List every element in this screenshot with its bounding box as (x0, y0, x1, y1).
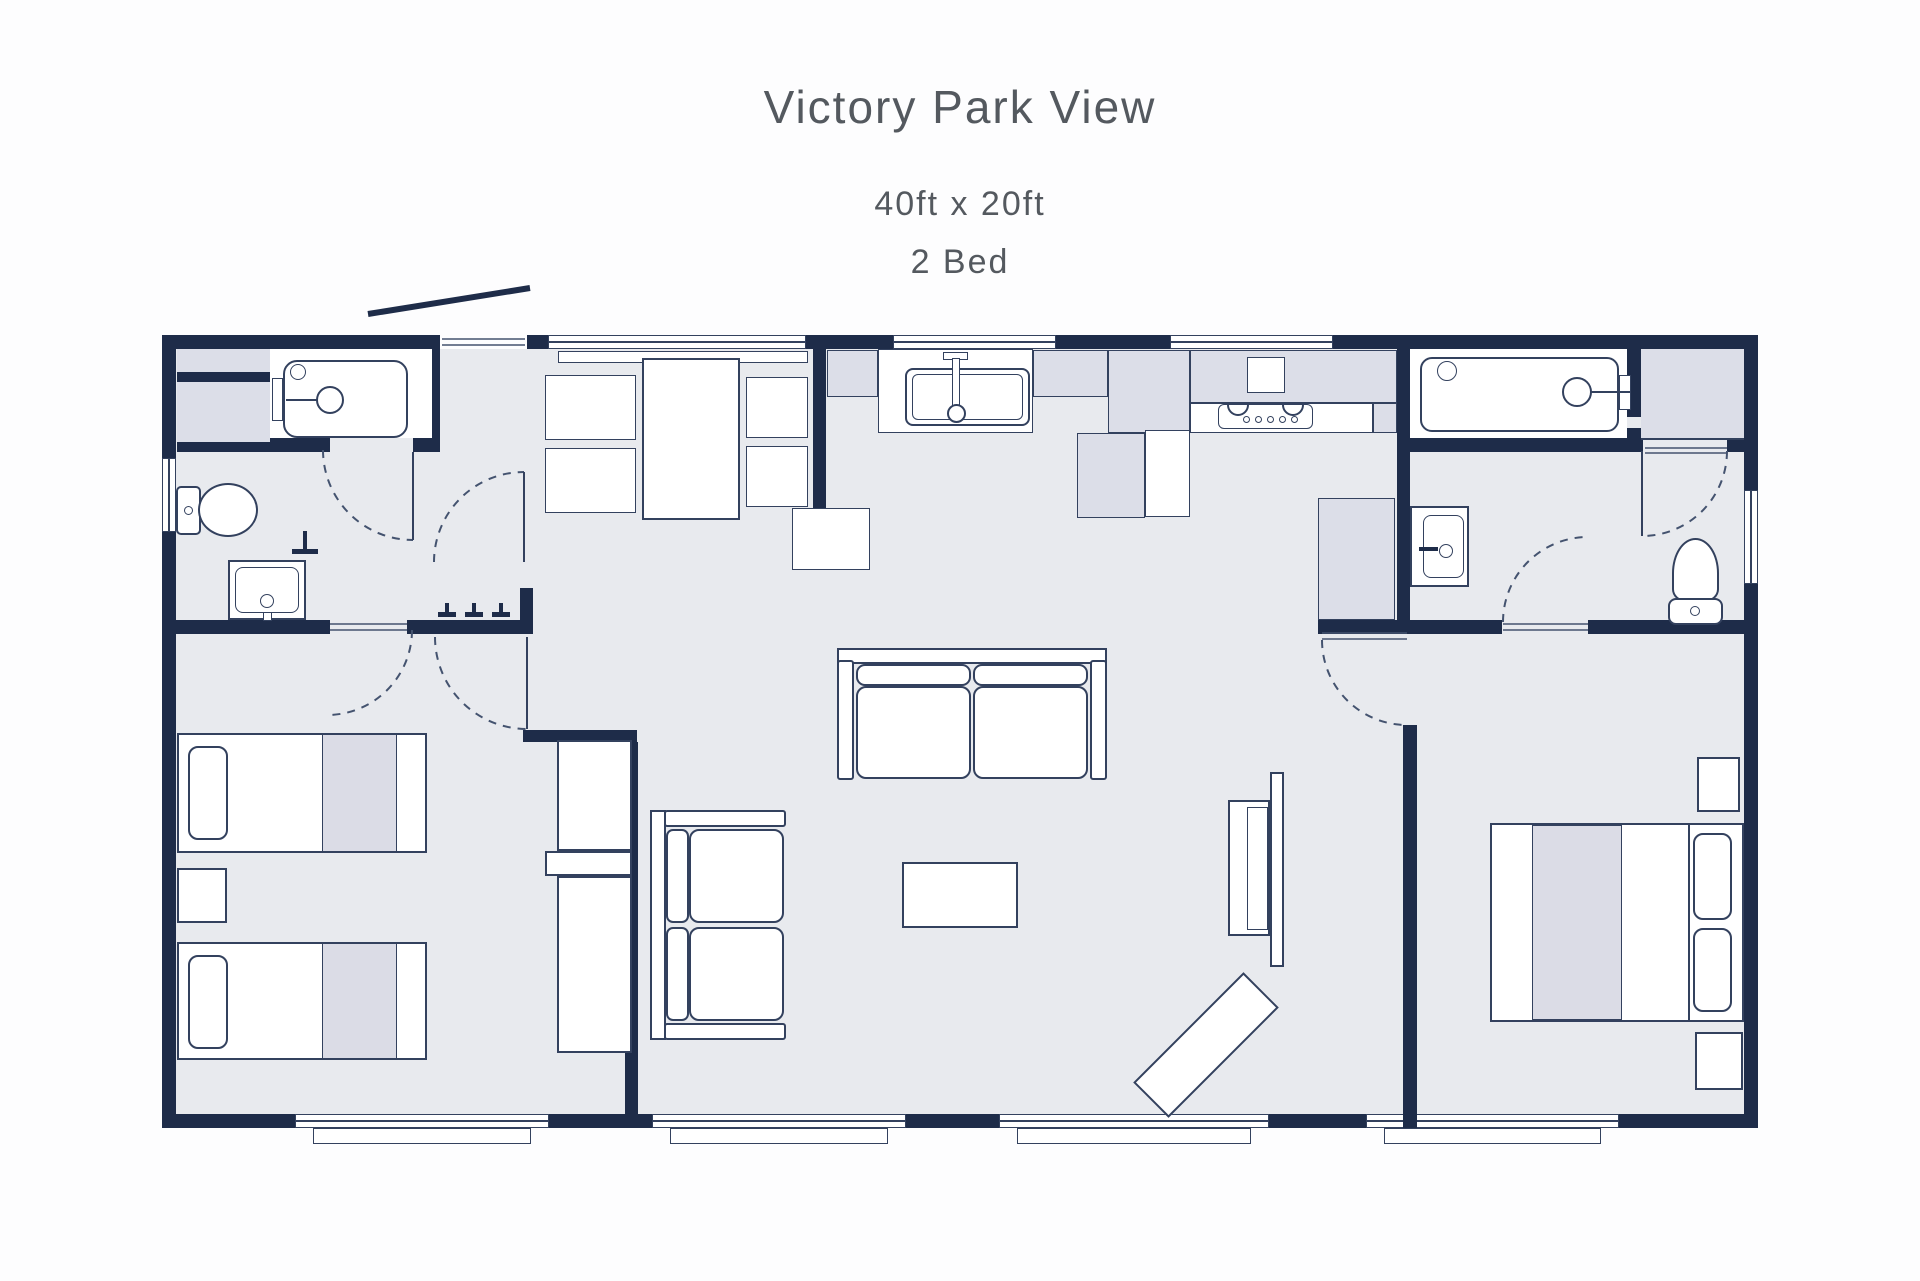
bed-pillow (188, 746, 228, 840)
shower-shelf-unit (177, 349, 270, 372)
plan-dimensions: 40ft x 20ft (0, 185, 1920, 224)
toilet-flush-button (184, 506, 193, 515)
towel-rail-icon (303, 531, 307, 551)
kitchen-cabinet (1033, 350, 1108, 397)
stove-burner (1291, 416, 1298, 423)
shower-enclosure (1641, 349, 1744, 440)
coffee-table (902, 862, 1018, 928)
wall-top (162, 335, 440, 349)
sofa-armrest (837, 660, 854, 780)
bed-pillow (188, 955, 228, 1049)
window-glass-line (1750, 490, 1752, 584)
plan-title: Victory Park View (0, 80, 1920, 134)
kitchen-sink-basin (912, 374, 1023, 420)
wall-bottom (162, 1114, 295, 1128)
wall-hall-stub (520, 588, 533, 634)
kitchen-unit (1145, 430, 1190, 517)
wardrobe (557, 876, 632, 1053)
wall-bathroom1-tub (413, 438, 440, 452)
wall-bedroom2-left (1403, 725, 1417, 1128)
loveseat-back (650, 810, 666, 1040)
wall-right (1744, 584, 1758, 1128)
nightstand (1695, 1032, 1743, 1090)
window-glass-line (893, 341, 1056, 343)
wall-bathroom2-tub (1410, 438, 1627, 452)
tv-screen (1270, 772, 1284, 967)
bathtub-ledge (1619, 375, 1631, 410)
wardrobe (557, 740, 632, 851)
loveseat-seat-cushion (689, 829, 784, 923)
bathtub-ledge (272, 378, 283, 421)
kitchen-appliance (1247, 357, 1285, 393)
entrance-door-leaf (368, 288, 530, 314)
loveseat-back-cushion (666, 829, 689, 923)
kitchen-cabinet (827, 350, 878, 397)
shelf-divider (177, 442, 274, 452)
kitchen-faucet (952, 358, 960, 406)
floorplan-page: Victory Park View 40ft x 20ft 2 Bed (0, 0, 1920, 1281)
sink-tap (1419, 547, 1438, 551)
sofa-back-cushion (856, 664, 971, 686)
kitchen-faucet-head (947, 404, 966, 423)
window-sill (1017, 1128, 1251, 1144)
plan-bedroom-count: 2 Bed (0, 243, 1920, 282)
nightstand (177, 868, 227, 923)
window-glass-line (999, 1120, 1269, 1122)
stove-burner (1267, 416, 1274, 423)
towel-rail-icon (292, 549, 318, 554)
wall-right (1744, 335, 1758, 490)
wall-top (1333, 335, 1744, 349)
wall-left (162, 349, 176, 458)
tv-stand-inner (1247, 807, 1268, 930)
coat-hook-icon (465, 612, 483, 617)
kitchen-cabinet (1108, 350, 1190, 433)
kitchen-cabinet-run (1190, 350, 1397, 403)
sofa-back-cushion (973, 664, 1088, 686)
kitchen-peninsula (792, 508, 870, 570)
stove-burner (1243, 416, 1250, 423)
sink-tap (263, 612, 272, 621)
bed-blanket (1532, 825, 1622, 1020)
wall-bathroom1-tub (270, 438, 330, 452)
stove-burner (1255, 416, 1262, 423)
bathtub-drain (290, 364, 306, 380)
loveseat-armrest (664, 1023, 786, 1040)
wall-kitchen-left (813, 335, 826, 512)
bed-pillow (1693, 833, 1732, 920)
wardrobe-shelf (545, 851, 632, 876)
loveseat-back-cushion (666, 927, 689, 1021)
sofa-armrest (1090, 660, 1107, 780)
toilet-bowl (198, 483, 258, 537)
wall-top (1056, 335, 1170, 349)
toilet-flush-button (1690, 606, 1700, 616)
window-glass-line (168, 458, 170, 532)
wall-kitchen-right (1397, 335, 1410, 622)
toilet-bowl (1672, 538, 1719, 602)
fridge (1318, 498, 1395, 620)
loveseat-armrest (664, 810, 786, 827)
wall-bottom (1269, 1114, 1366, 1128)
window-sill (313, 1128, 531, 1144)
wall-top (527, 335, 548, 349)
shower-shelf-unit (177, 382, 270, 442)
window-glass-line (548, 341, 806, 343)
dining-chair (746, 446, 808, 507)
sofa-back (837, 648, 1107, 664)
window-glass-line (295, 1120, 549, 1122)
nightstand (1697, 757, 1740, 812)
bathtub-drain (1437, 361, 1457, 381)
coat-hook-icon (438, 612, 456, 617)
window-glass-line (652, 1120, 906, 1122)
wall-bedroom2-top (1318, 620, 1502, 634)
wall-bottom (1619, 1114, 1758, 1128)
kitchen-unit (1077, 433, 1145, 518)
sofa-seat-cushion (973, 686, 1088, 779)
window-glass-line (1170, 341, 1333, 343)
dining-chair (746, 377, 808, 438)
bed-pillow (1693, 928, 1732, 1012)
bathtub-faucet (1562, 377, 1592, 407)
sink-drain (260, 594, 274, 608)
bathtub-faucet (316, 386, 344, 414)
wall-hall-hooks (407, 620, 523, 634)
wall-bottom (906, 1114, 999, 1128)
window-sill (670, 1128, 888, 1144)
shelf-divider (177, 372, 270, 382)
stove-burner (1279, 416, 1286, 423)
dining-table (642, 358, 740, 520)
sofa-seat-cushion (856, 686, 971, 779)
dining-chair (545, 448, 636, 513)
bed-headboard-line (1688, 824, 1690, 1021)
stove-hob (1218, 404, 1313, 429)
wall-bathroom1-bottom (162, 620, 330, 634)
wall-bathroom2-stub (1727, 438, 1744, 452)
dining-chair (545, 375, 636, 440)
coat-hook-icon (492, 612, 510, 617)
sink-drain (1439, 544, 1453, 558)
loveseat-seat-cushion (689, 927, 784, 1021)
bed-blanket (322, 734, 397, 852)
window-sill (1384, 1128, 1601, 1144)
bed-blanket (322, 943, 397, 1059)
kitchen-cabinet-end (1373, 403, 1397, 433)
